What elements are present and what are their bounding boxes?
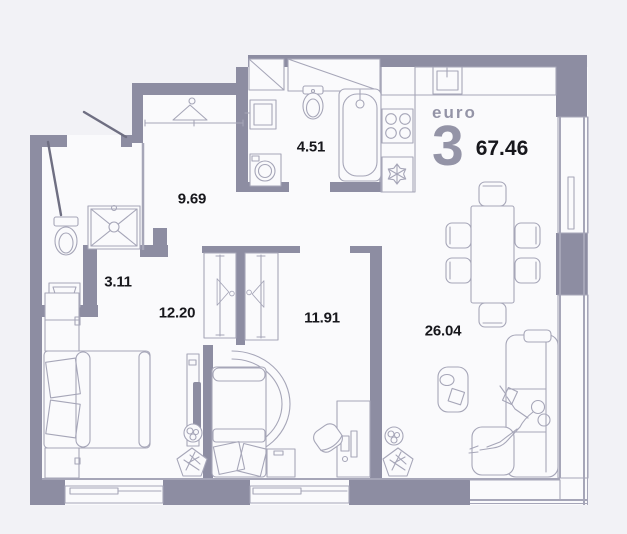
plant <box>184 424 202 442</box>
rooms-count-label: 3 <box>432 119 464 173</box>
side-table <box>438 367 468 412</box>
nightstand <box>45 448 80 478</box>
apartment-type-label: euro 3 67.46 <box>432 103 528 173</box>
bed-single <box>212 367 267 477</box>
area-label-bathroom: 4.51 <box>297 139 325 156</box>
plant <box>385 427 403 445</box>
wc-door-icon <box>48 142 61 215</box>
area-label-bedroom-2: 11.91 <box>304 310 340 327</box>
plant <box>177 448 207 476</box>
plant <box>383 448 413 476</box>
total-area-label: 67.46 <box>476 137 529 161</box>
bed-double <box>44 351 150 448</box>
bath-toilet <box>303 86 323 119</box>
floor-plan: 9.69 4.51 3.11 12.20 11.91 26.04 euro 3 … <box>0 0 627 534</box>
sofa <box>472 330 558 477</box>
area-label-wc: 3.11 <box>104 274 132 291</box>
wardrobe <box>204 253 236 338</box>
washing-machine <box>250 154 281 186</box>
hanger-icon <box>173 98 207 120</box>
coat-rail <box>145 98 243 126</box>
stove <box>382 109 413 143</box>
wardrobe <box>245 253 278 340</box>
area-label-hallway: 9.69 <box>178 191 206 208</box>
entry-door-icon <box>84 112 126 137</box>
furniture-layer <box>0 0 627 534</box>
nightstand <box>267 449 295 477</box>
area-label-living: 26.04 <box>425 323 462 340</box>
bathtub <box>339 89 381 181</box>
dining-table <box>471 206 514 303</box>
shower <box>88 206 140 250</box>
area-label-bedroom: 12.20 <box>159 305 196 322</box>
wc-toilet <box>54 217 78 255</box>
nightstand <box>45 293 80 351</box>
window-bedroom-2 <box>250 486 349 503</box>
fridge <box>382 157 413 192</box>
kitchen-sink <box>433 67 462 94</box>
bath-sink <box>245 100 276 129</box>
window-bedroom <box>65 486 163 503</box>
